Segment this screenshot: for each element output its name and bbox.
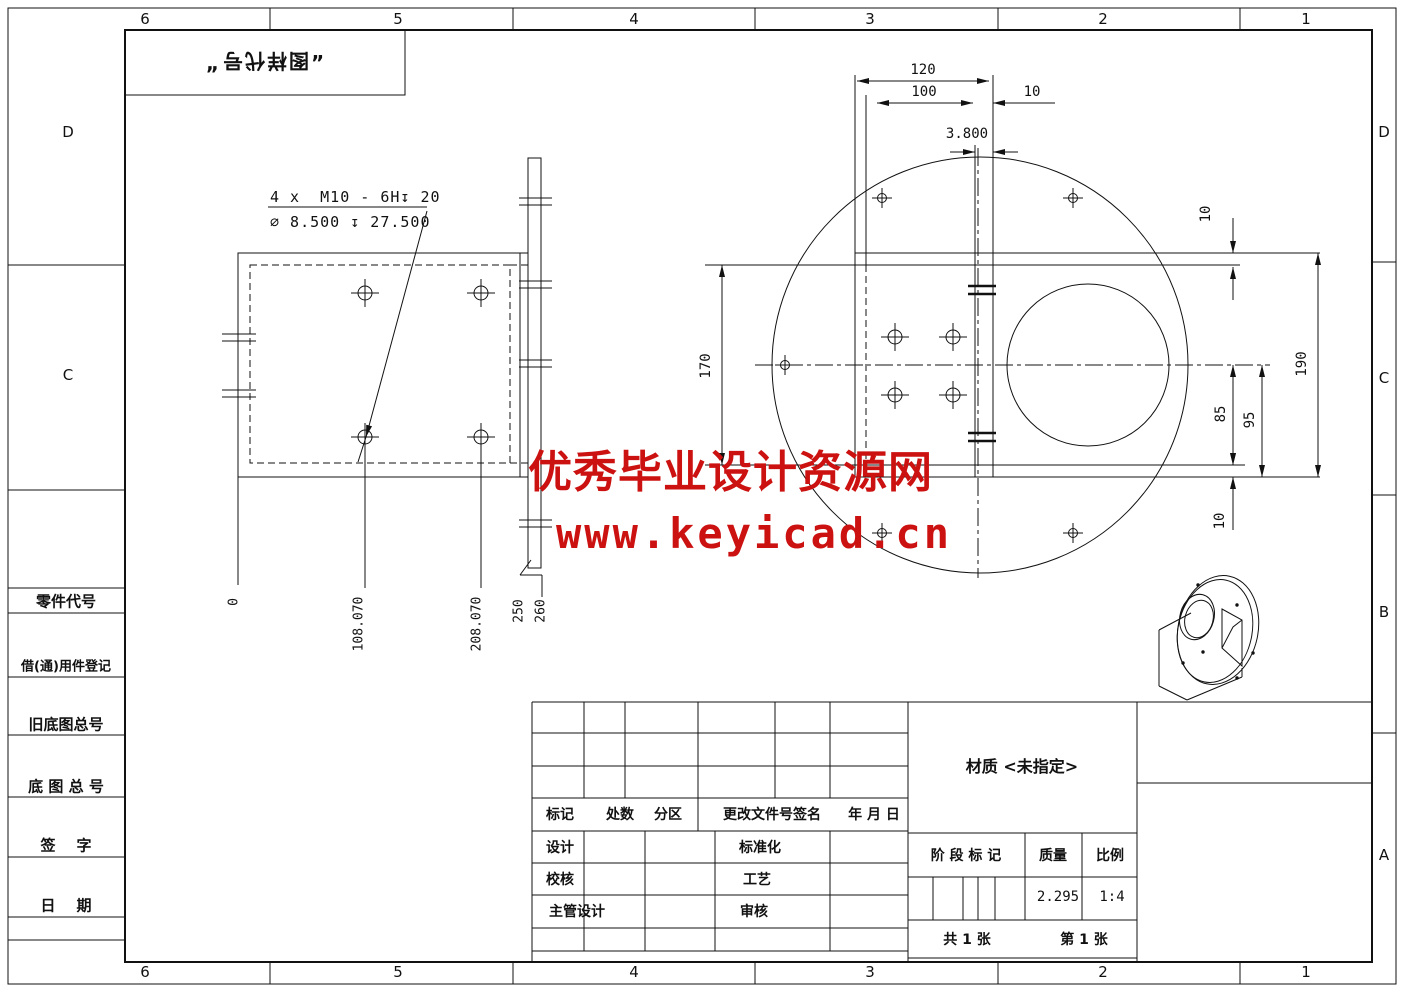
border-col-label: 6 (140, 10, 150, 28)
border-col-label: 4 (629, 963, 639, 981)
tb-scale-value: 1:4 (1099, 889, 1124, 905)
tb-header-file-sig: 更改文件号签名 (723, 804, 821, 824)
border-col-label: 3 (865, 10, 875, 28)
border-col-label: 2 (1098, 10, 1108, 28)
border-col-label: 5 (393, 10, 403, 28)
tb-mass-value: 2.295 (1037, 889, 1079, 905)
border-col-label: 1 (1301, 963, 1311, 981)
dim-95: 95 (1242, 412, 1258, 429)
sidebar-label-borrowed: 借(通)用件登记 (21, 656, 111, 675)
sidebar-label-part-code: 零件代号 (36, 591, 96, 612)
iso-flange-holes (1181, 583, 1254, 679)
sidebar-table (8, 588, 125, 940)
tb-material: 材质 <未指定> (966, 753, 1078, 777)
border-col-label: 4 (629, 10, 639, 28)
tb-header-zone: 分区 (654, 804, 682, 824)
tb-sheets-total: 共 1 张 (943, 929, 991, 949)
tb-header-date: 年 月 日 (848, 804, 900, 824)
sidebar-label-old-base-no: 旧底图总号 (28, 714, 103, 735)
stamp-text: 图样代号 (221, 48, 309, 77)
tb-design: 设计 (546, 837, 574, 857)
tb-audit: 审核 (740, 901, 768, 921)
border-row-label: D (62, 123, 74, 141)
thread-note-line2: ⌀ 8.500 ↧ 27.500 (270, 213, 431, 231)
watermark-text: 优秀毕业设计资源网 (528, 436, 933, 500)
watermark-url: www.keyicad.cn (556, 509, 952, 558)
ordinate-label-260: 260 (534, 599, 549, 622)
stamp-close-quote: ” (311, 51, 324, 75)
title-block-grid (532, 702, 1372, 962)
border-col-label: 6 (140, 963, 150, 981)
tb-stage-label: 阶 段 标 记 (931, 845, 1002, 865)
border-row-label: C (1379, 369, 1389, 387)
tb-header-count: 处数 (606, 804, 634, 824)
ordinate-label-108: 108.070 (352, 597, 367, 652)
tb-header-mark: 标记 (546, 804, 574, 824)
dim-170: 170 (698, 353, 714, 378)
drawing-code-stamp: „ 图样代号 ” (125, 30, 405, 95)
tb-sheet-number: 第 1 张 (1060, 929, 1108, 949)
sidebar-label-base-no: 底 图 总 号 (28, 776, 104, 797)
sidebar-label-date: 日 期 (41, 895, 92, 916)
border-col-label: 3 (865, 963, 875, 981)
border-col-label: 5 (393, 963, 403, 981)
border-row-label: A (1379, 846, 1389, 864)
tb-standardize: 标准化 (739, 837, 781, 857)
dim-85: 85 (1213, 406, 1229, 423)
drawing-sheet: 6 5 4 3 2 1 6 5 4 3 2 1 D C D C B A „ 图样… (0, 0, 1403, 992)
tb-scale-label: 比例 (1096, 845, 1124, 865)
front-view (705, 75, 1320, 578)
tb-chief-design: 主管设计 (549, 901, 605, 921)
ordinate-label-250: 250 (512, 599, 527, 622)
dim-10-top: 10 (1024, 84, 1041, 100)
border-row-label: C (63, 366, 73, 384)
side-view (510, 158, 552, 597)
ordinate-label-208: 208.070 (470, 597, 485, 652)
tb-process: 工艺 (743, 869, 771, 889)
dim-190: 190 (1294, 351, 1310, 376)
tb-check: 校核 (546, 869, 574, 889)
dim-10-right-top: 10 (1198, 206, 1214, 223)
plan-view (222, 207, 520, 588)
sidebar-label-signature: 签 字 (41, 835, 92, 856)
border-col-label: 1 (1301, 10, 1311, 28)
border-row-label: B (1379, 603, 1389, 621)
dim-3800: 3.800 (946, 126, 988, 142)
border-col-label: 2 (1098, 963, 1108, 981)
dim-120: 120 (910, 62, 935, 78)
dim-100: 100 (911, 84, 936, 100)
isometric-view (1159, 568, 1269, 700)
border-row-label: D (1378, 123, 1390, 141)
thread-note-line1: 4 x M10 - 6H↧ 20 (270, 188, 441, 206)
tb-mass-label: 质量 (1039, 845, 1067, 865)
stamp-open-quote: „ (206, 51, 219, 75)
ordinate-label-0: 0 (227, 598, 242, 606)
dim-10-right-bottom: 10 (1212, 513, 1228, 530)
